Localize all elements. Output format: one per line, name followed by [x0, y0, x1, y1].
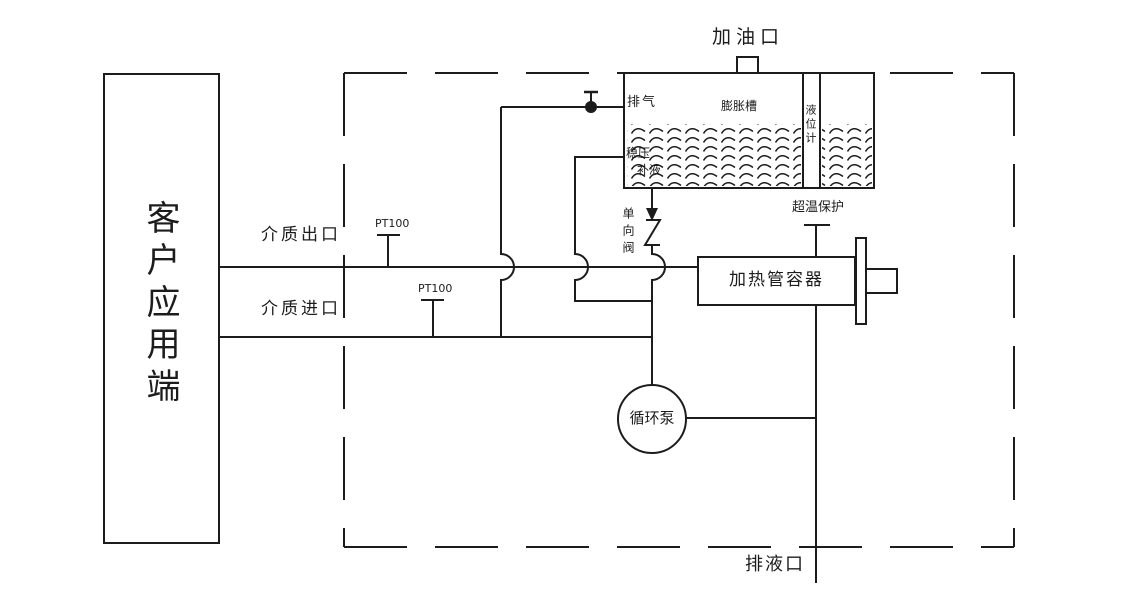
medium-inlet-label: 介质进口: [261, 300, 341, 320]
level-gauge-label: 液位计: [805, 104, 816, 146]
pt100-inlet-label: PT100: [418, 283, 452, 296]
drain-port-label: 排液口: [745, 555, 805, 576]
expansion-tank-label: 膨胀槽: [721, 100, 757, 114]
schematic-page: 加油口 排气 膨胀槽 液位计 稳压 补液 介质出口 介质进口 PT100 PT1…: [0, 0, 1125, 615]
overtemp-protection-label: 超温保护: [792, 201, 844, 216]
oil-fill-port-label: 加油口: [706, 27, 790, 49]
exhaust-label: 排气: [627, 96, 657, 111]
pt100-outlet-label: PT100: [375, 218, 409, 231]
pt100-probe-outlet: [377, 235, 400, 267]
circulation-pump-label: 循环泵: [617, 409, 687, 429]
check-valve-symbol: [645, 220, 660, 245]
pressure-stabilize-label: 稳压: [626, 147, 650, 161]
heater-plug: [866, 269, 897, 293]
oil-fill-port: [737, 57, 758, 73]
heater-flange: [856, 238, 866, 324]
medium-outlet-label: 介质出口: [261, 226, 341, 246]
liquid-replenish-label: 补液: [637, 164, 661, 178]
check-valve-label: 单向阀: [622, 207, 634, 258]
vent-drop-line: [501, 107, 514, 337]
customer-box-label: 客户应用端: [143, 200, 177, 410]
pt100-probe-inlet: [421, 300, 444, 337]
vent-valve-icon: [584, 92, 598, 113]
overtemp-probe: [804, 225, 830, 257]
liquid-waves-right: [822, 124, 872, 186]
heater-vessel-label: 加热管容器: [698, 257, 855, 305]
